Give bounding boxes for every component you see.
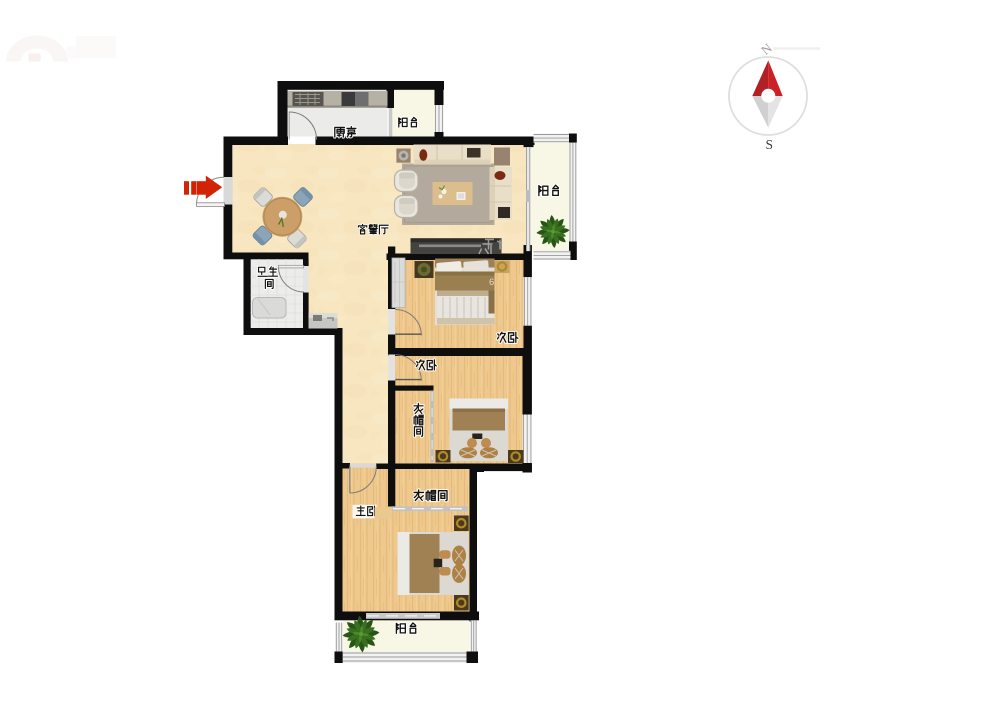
svg-text:6: 6 [489,277,494,288]
svg-text:N: N [758,40,775,58]
svg-text:S: S [766,137,774,152]
